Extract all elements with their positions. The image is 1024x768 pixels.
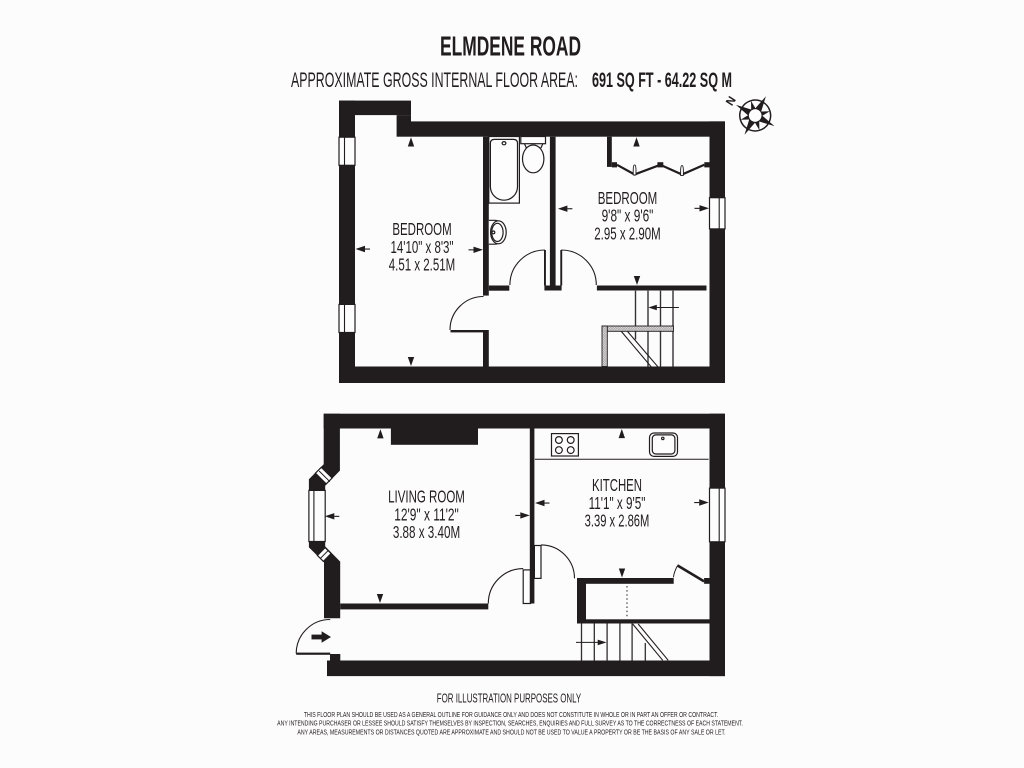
svg-text:ANY INTENDING PURCHASER OR LES: ANY INTENDING PURCHASER OR LESSEE SHOULD… xyxy=(277,721,743,728)
svg-text:3.88 x 3.40M: 3.88 x 3.40M xyxy=(393,522,460,542)
svg-text:691 SQ FT - 64.22 SQ M: 691 SQ FT - 64.22 SQ M xyxy=(592,69,732,92)
svg-text:APPROXIMATE GROSS INTERNAL FLO: APPROXIMATE GROSS INTERNAL FLOOR AREA: xyxy=(291,69,578,92)
svg-text:3.39 x 2.86M: 3.39 x 2.86M xyxy=(585,511,650,531)
svg-text:ELMDENE ROAD: ELMDENE ROAD xyxy=(440,31,581,62)
svg-text:FOR ILLUSTRATION PURPOSES ONLY: FOR ILLUSTRATION PURPOSES ONLY xyxy=(437,691,582,706)
svg-text:4.51 x 2.51M: 4.51 x 2.51M xyxy=(389,255,455,275)
svg-text:ANY AREAS, MEASUREMENTS OR DIS: ANY AREAS, MEASUREMENTS OR DISTANCES QUO… xyxy=(297,730,725,737)
svg-text:THIS FLOOR PLAN SHOULD BE USED: THIS FLOOR PLAN SHOULD BE USED AS A GENE… xyxy=(304,712,718,719)
svg-text:2.95 x 2.90M: 2.95 x 2.90M xyxy=(594,223,660,243)
svg-text:KITCHEN: KITCHEN xyxy=(592,475,642,495)
svg-text:BEDROOM: BEDROOM xyxy=(392,219,451,239)
